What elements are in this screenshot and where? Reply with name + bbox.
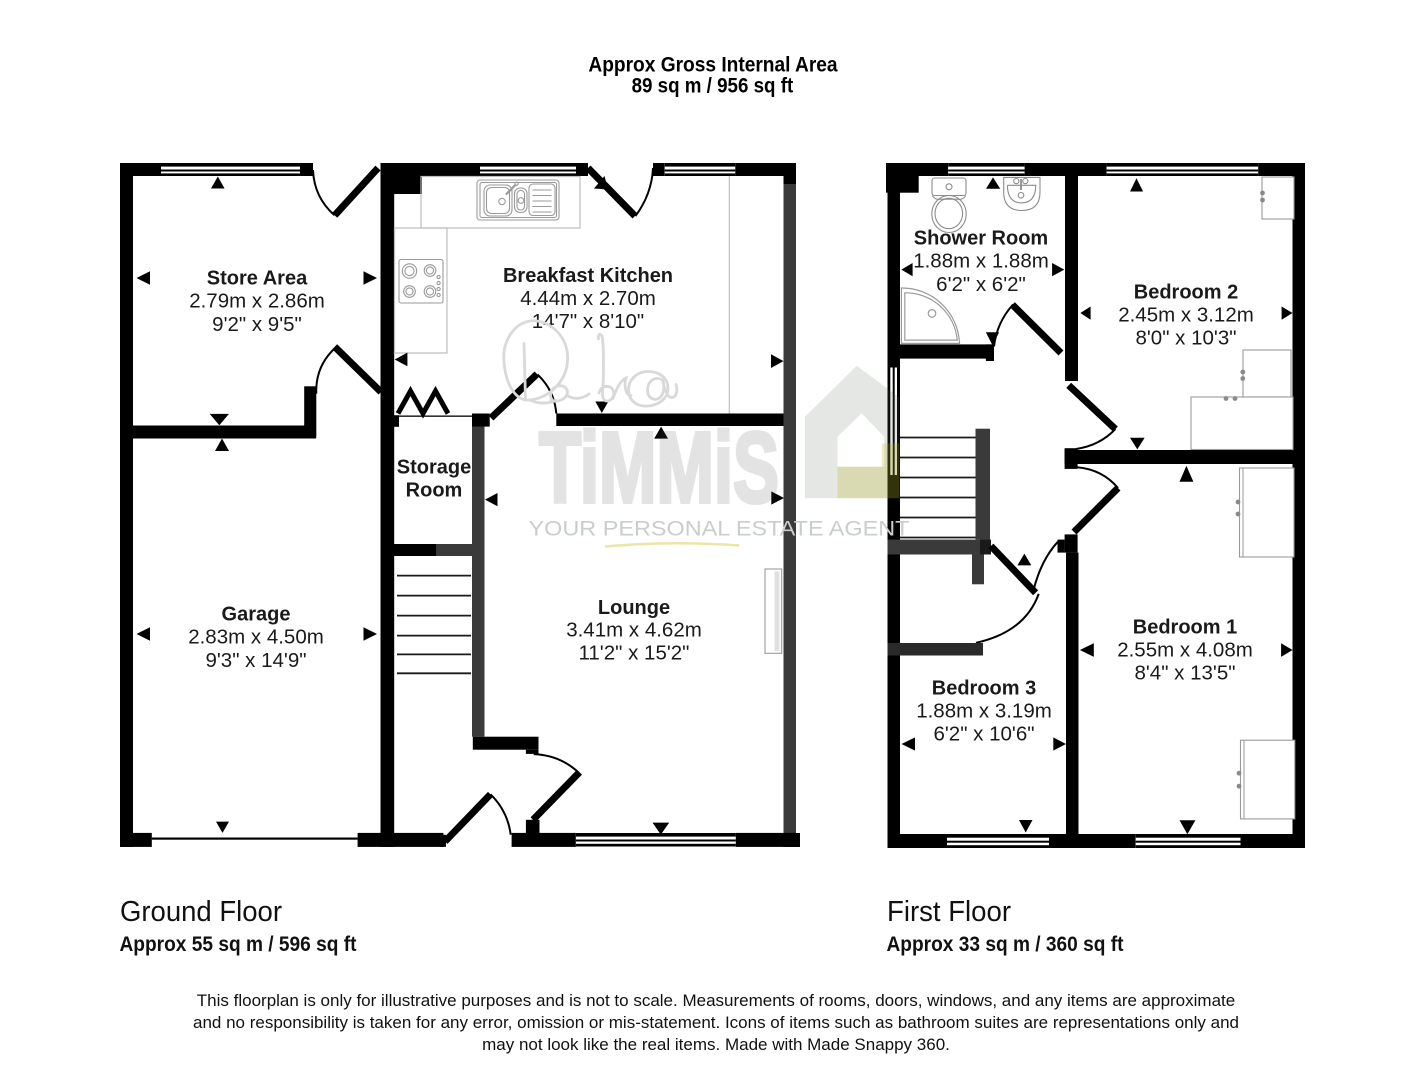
svg-text:2.79m x 2.86m: 2.79m x 2.86m xyxy=(189,290,325,313)
svg-text:9'3" x 14'9": 9'3" x 14'9" xyxy=(205,649,306,672)
svg-text:Lounge: Lounge xyxy=(598,597,670,619)
svg-text:2.45m x 3.12m: 2.45m x 3.12m xyxy=(1118,304,1254,327)
svg-text:3.41m x 4.62m: 3.41m x 4.62m xyxy=(566,619,702,642)
svg-text:Bedroom 1: Bedroom 1 xyxy=(1133,616,1237,638)
svg-text:9'2" x 9'5": 9'2" x 9'5" xyxy=(212,313,302,336)
svg-text:1.88m x 3.19m: 1.88m x 3.19m xyxy=(916,699,1052,722)
svg-text:may not look like the real ite: may not look like the real items. Made w… xyxy=(482,1035,950,1054)
svg-text:Shower Room: Shower Room xyxy=(914,228,1048,250)
svg-text:89 sq m / 956 sq ft: 89 sq m / 956 sq ft xyxy=(632,75,794,98)
svg-text:Ground Floor: Ground Floor xyxy=(120,896,282,928)
svg-text:First Floor: First Floor xyxy=(887,896,1011,928)
svg-text:2.55m x 4.08m: 2.55m x 4.08m xyxy=(1117,638,1253,661)
svg-text:Room: Room xyxy=(406,479,463,501)
svg-text:1.88m x 1.88m: 1.88m x 1.88m xyxy=(913,250,1049,273)
svg-text:Breakfast Kitchen: Breakfast Kitchen xyxy=(503,265,673,287)
svg-text:Bedroom 2: Bedroom 2 xyxy=(1134,282,1238,304)
svg-text:Approx Gross Internal Area: Approx Gross Internal Area xyxy=(588,54,838,77)
svg-text:6'2" x 10'6": 6'2" x 10'6" xyxy=(933,722,1034,745)
svg-text:Approx 33 sq m / 360 sq ft: Approx 33 sq m / 360 sq ft xyxy=(887,933,1124,956)
svg-text:This floorplan is only for ill: This floorplan is only for illustrative … xyxy=(197,991,1235,1010)
svg-text:Approx 55 sq m / 596 sq ft: Approx 55 sq m / 596 sq ft xyxy=(120,933,357,956)
svg-text:6'2" x 6'2": 6'2" x 6'2" xyxy=(936,273,1026,296)
svg-text:11'2" x 15'2": 11'2" x 15'2" xyxy=(579,642,690,665)
svg-text:Garage: Garage xyxy=(222,604,291,626)
svg-text:and no responsibility is taken: and no responsibility is taken for any e… xyxy=(193,1013,1239,1032)
svg-text:Bedroom 3: Bedroom 3 xyxy=(932,677,1036,699)
svg-text:2.83m x 4.50m: 2.83m x 4.50m xyxy=(188,626,324,649)
svg-text:Storage: Storage xyxy=(397,457,471,479)
svg-text:YOUR PERSONAL ESTATE AGENT: YOUR PERSONAL ESTATE AGENT xyxy=(529,518,910,541)
svg-text:8'4" x 13'5": 8'4" x 13'5" xyxy=(1134,661,1235,684)
svg-text:14'7" x 8'10": 14'7" x 8'10" xyxy=(532,310,644,333)
svg-text:Store Area: Store Area xyxy=(207,268,308,290)
svg-text:4.44m x 2.70m: 4.44m x 2.70m xyxy=(520,287,656,310)
svg-text:8'0" x 10'3": 8'0" x 10'3" xyxy=(1135,327,1236,350)
svg-text:TiMMiS: TiMMiS xyxy=(539,412,779,524)
